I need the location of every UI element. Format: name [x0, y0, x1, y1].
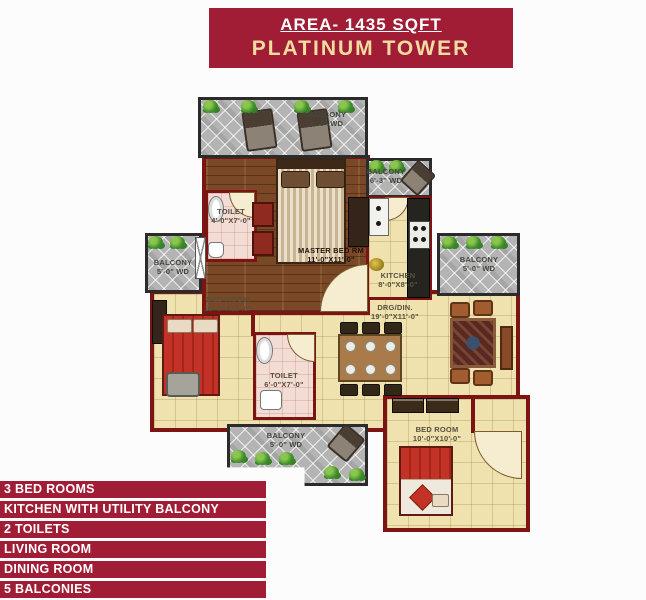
plant-icon	[203, 100, 218, 113]
room-dim: 10'-0"X10'-0"	[400, 435, 474, 444]
plate-icon	[345, 364, 356, 375]
room-dim: 6'-0"X7'-0"	[254, 381, 314, 390]
plant-icon	[170, 236, 185, 249]
armchair-icon	[473, 370, 493, 386]
armchair-icon	[450, 302, 470, 318]
dining-chair-icon	[340, 322, 358, 334]
room-dim: 6'-3" WD	[364, 177, 408, 186]
burner-dot	[421, 226, 426, 231]
wardrobe-icon	[348, 197, 369, 247]
floorplan-brochure: AREA- 1435 SQFT PLATINUM TOWER	[0, 0, 646, 600]
tap-dot	[376, 206, 381, 211]
room-dim: 5'-0" WD	[246, 441, 326, 450]
burner-dot	[413, 237, 418, 242]
header-banner: AREA- 1435 SQFT PLATINUM TOWER	[209, 8, 513, 68]
plant-icon	[442, 236, 457, 249]
rug-icon	[450, 318, 496, 368]
plant-icon	[255, 452, 270, 465]
washbasin-icon	[256, 337, 273, 364]
room-dim: 5'-0" WD	[288, 120, 366, 129]
ottoman-icon	[252, 231, 274, 256]
dining-chair-icon	[340, 384, 358, 396]
feature-item: KITCHEN WITH UTILITY BALCONY	[0, 501, 266, 518]
label-kitchen: KITCHEN 8'-0"X8'-0"	[366, 272, 430, 289]
burner-dot	[413, 226, 418, 231]
feature-item: 3 BED ROOMS	[0, 481, 266, 498]
room-dim: 4'-0"X7'-0"	[206, 217, 256, 226]
lounge-chair-icon	[241, 108, 277, 152]
room-dim: 11'-0"X11'-0"	[293, 256, 369, 265]
label-toilet-2: TOILET 6'-0"X7'-0"	[254, 372, 314, 389]
plant-icon	[466, 236, 481, 249]
sink-unit-icon	[369, 198, 389, 236]
plant-icon	[148, 236, 163, 249]
label-toilet-1: TOILET 4'-0"X7'-0"	[206, 208, 256, 225]
tower-name: PLATINUM TOWER	[209, 37, 513, 61]
area-label: AREA- 1435 SQFT	[209, 15, 513, 35]
room-dim: 5'-0" WD	[146, 268, 200, 277]
feature-item: 2 TOILETS	[0, 521, 266, 538]
feature-list: 3 BED ROOMS KITCHEN WITH UTILITY BALCONY…	[0, 481, 266, 600]
plate-icon	[385, 341, 396, 352]
label-master-bedroom: MASTER BED RM 11'-0"X11'-0"	[293, 247, 369, 264]
dining-chair-icon	[384, 384, 402, 396]
pillow-icon	[193, 319, 218, 333]
bed-headboard	[278, 160, 344, 169]
plant-icon	[369, 258, 384, 271]
plate-icon	[345, 341, 356, 352]
label-living-dining: DRG/DIN. 19'-0"X11'-0"	[355, 304, 435, 321]
plant-icon	[491, 236, 506, 249]
dining-chair-icon	[362, 322, 380, 334]
dresser-icon	[426, 398, 459, 413]
sofa-set	[446, 300, 518, 388]
label-balcony-left: BALCONY 5'-0" WD	[146, 259, 200, 276]
plate-icon	[365, 341, 376, 352]
room-dim: 10'-0"X11'-0"	[190, 305, 266, 314]
pillow-icon	[432, 494, 449, 507]
label-balcony-top: BALCONY 5'-0" WD	[288, 111, 366, 128]
feature-item: DINING ROOM	[0, 561, 266, 578]
room-dim: 8'-0"X8'-0"	[366, 281, 430, 290]
pillow-icon	[281, 171, 310, 188]
dining-set	[336, 322, 406, 394]
bed-icon	[399, 446, 453, 516]
plant-icon	[241, 100, 256, 113]
wall-segment	[251, 310, 255, 336]
stove-icon	[409, 221, 430, 249]
pillow-icon	[316, 171, 345, 188]
tap-dot	[376, 221, 381, 226]
room-dim: 19'-0"X11'-0"	[355, 313, 435, 322]
plate-icon	[365, 364, 376, 375]
plant-icon	[349, 468, 364, 481]
plant-icon	[231, 450, 246, 463]
plant-icon	[324, 466, 339, 479]
label-balcony-right: BALCONY 5'-0" WD	[442, 256, 516, 273]
dining-chair-icon	[362, 384, 380, 396]
pillow-icon	[167, 319, 192, 333]
dining-chair-icon	[384, 322, 402, 334]
armchair-icon	[166, 372, 200, 397]
feature-item: 5 BALCONIES	[0, 581, 266, 598]
armchair-icon	[473, 300, 493, 316]
dresser-icon	[392, 398, 424, 413]
burner-dot	[421, 237, 426, 242]
plate-icon	[385, 364, 396, 375]
room-dim: 5'-0" WD	[442, 265, 516, 274]
label-balcony-bottom: BALCONY 5'-0" WD	[246, 432, 326, 449]
label-balcony-utility: BALCONY 6'-3" WD	[364, 168, 408, 185]
feature-item: LIVING ROOM	[0, 541, 266, 558]
plant-icon	[279, 452, 294, 465]
wc-icon	[260, 390, 282, 410]
label-bedroom-left: BED ROOM 10'-0"X11'-0"	[190, 296, 266, 313]
wc-icon	[208, 242, 224, 258]
bench-icon	[500, 326, 513, 370]
label-bedroom-right: BED ROOM 10'-0"X10'-0"	[400, 426, 474, 443]
armchair-icon	[450, 368, 470, 384]
